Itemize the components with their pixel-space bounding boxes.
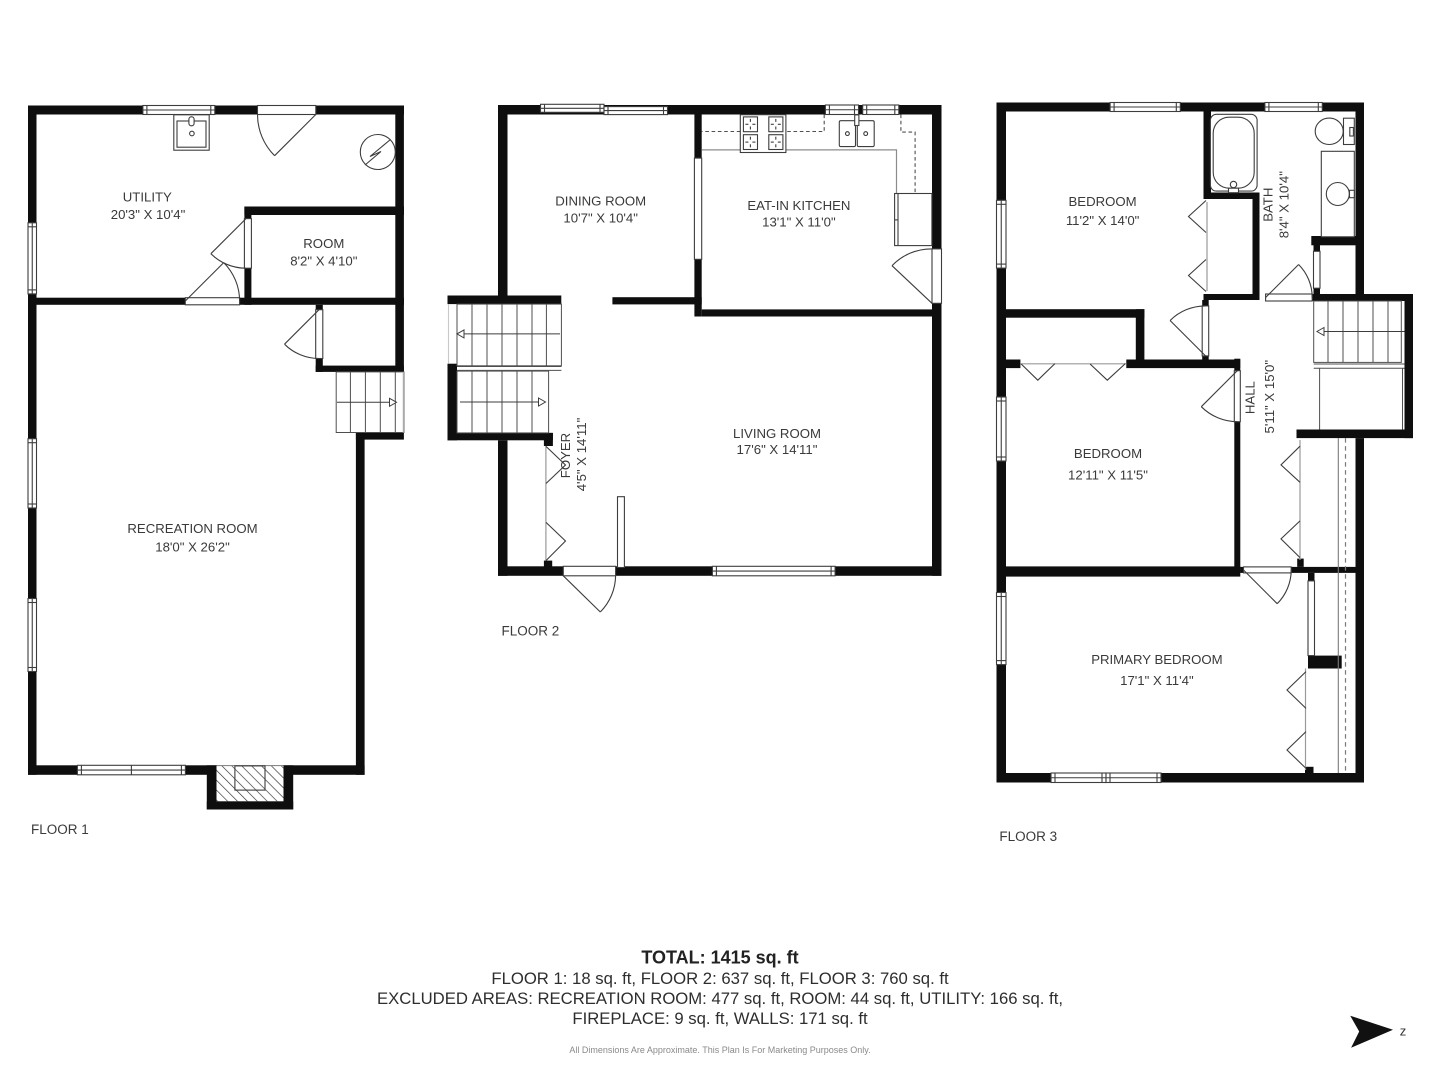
svg-text:4'5" X 14'11": 4'5" X 14'11" (574, 417, 589, 491)
svg-text:DINING ROOM: DINING ROOM (555, 194, 646, 209)
svg-text:FIREPLACE: 9 sq. ft, WALLS: 17: FIREPLACE: 9 sq. ft, WALLS: 171 sq. ft (572, 1009, 868, 1028)
svg-text:BATH: BATH (1261, 188, 1276, 222)
svg-text:All Dimensions Are Approximate: All Dimensions Are Approximate. This Pla… (569, 1045, 870, 1055)
svg-text:RECREATION ROOM: RECREATION ROOM (127, 521, 257, 536)
svg-text:FLOOR 1: 18 sq. ft, FLOOR 2: 6: FLOOR 1: 18 sq. ft, FLOOR 2: 637 sq. ft,… (491, 969, 949, 988)
svg-text:8'4" X 10'4": 8'4" X 10'4" (1277, 171, 1292, 239)
svg-text:TOTAL: 1415 sq. ft: TOTAL: 1415 sq. ft (641, 948, 798, 968)
svg-text:UTILITY: UTILITY (123, 189, 172, 204)
svg-text:12'11" X 11'5": 12'11" X 11'5" (1068, 467, 1148, 482)
svg-text:10'7" X 10'4": 10'7" X 10'4" (563, 211, 638, 226)
svg-text:EAT-IN KITCHEN: EAT-IN KITCHEN (747, 198, 850, 213)
svg-text:17'6" X 14'11": 17'6" X 14'11" (737, 442, 818, 457)
svg-text:13'1" X 11'0": 13'1" X 11'0" (762, 215, 836, 230)
svg-text:ROOM: ROOM (303, 236, 344, 251)
svg-text:11'2" X 14'0": 11'2" X 14'0" (1066, 213, 1140, 228)
svg-text:FOYER: FOYER (558, 433, 573, 478)
svg-text:FLOOR 1: FLOOR 1 (31, 822, 89, 837)
svg-text:8'2" X 4'10": 8'2" X 4'10" (290, 253, 358, 268)
svg-text:PRIMARY BEDROOM: PRIMARY BEDROOM (1091, 652, 1222, 667)
svg-text:HALL: HALL (1243, 381, 1258, 414)
svg-text:LIVING ROOM: LIVING ROOM (733, 426, 821, 441)
svg-text:BEDROOM: BEDROOM (1069, 194, 1137, 209)
svg-text:z: z (1400, 1024, 1407, 1039)
svg-text:18'0" X 26'2": 18'0" X 26'2" (155, 540, 230, 555)
svg-text:5'11" X 15'0": 5'11" X 15'0" (1262, 360, 1277, 434)
svg-text:BEDROOM: BEDROOM (1074, 446, 1142, 461)
svg-text:EXCLUDED AREAS: RECREATION ROO: EXCLUDED AREAS: RECREATION ROOM: 477 sq.… (377, 989, 1063, 1008)
svg-text:FLOOR 2: FLOOR 2 (502, 624, 560, 639)
svg-text:17'1" X 11'4": 17'1" X 11'4" (1120, 673, 1194, 688)
svg-text:20'3" X 10'4": 20'3" X 10'4" (111, 207, 186, 222)
svg-text:FLOOR 3: FLOOR 3 (999, 829, 1057, 844)
